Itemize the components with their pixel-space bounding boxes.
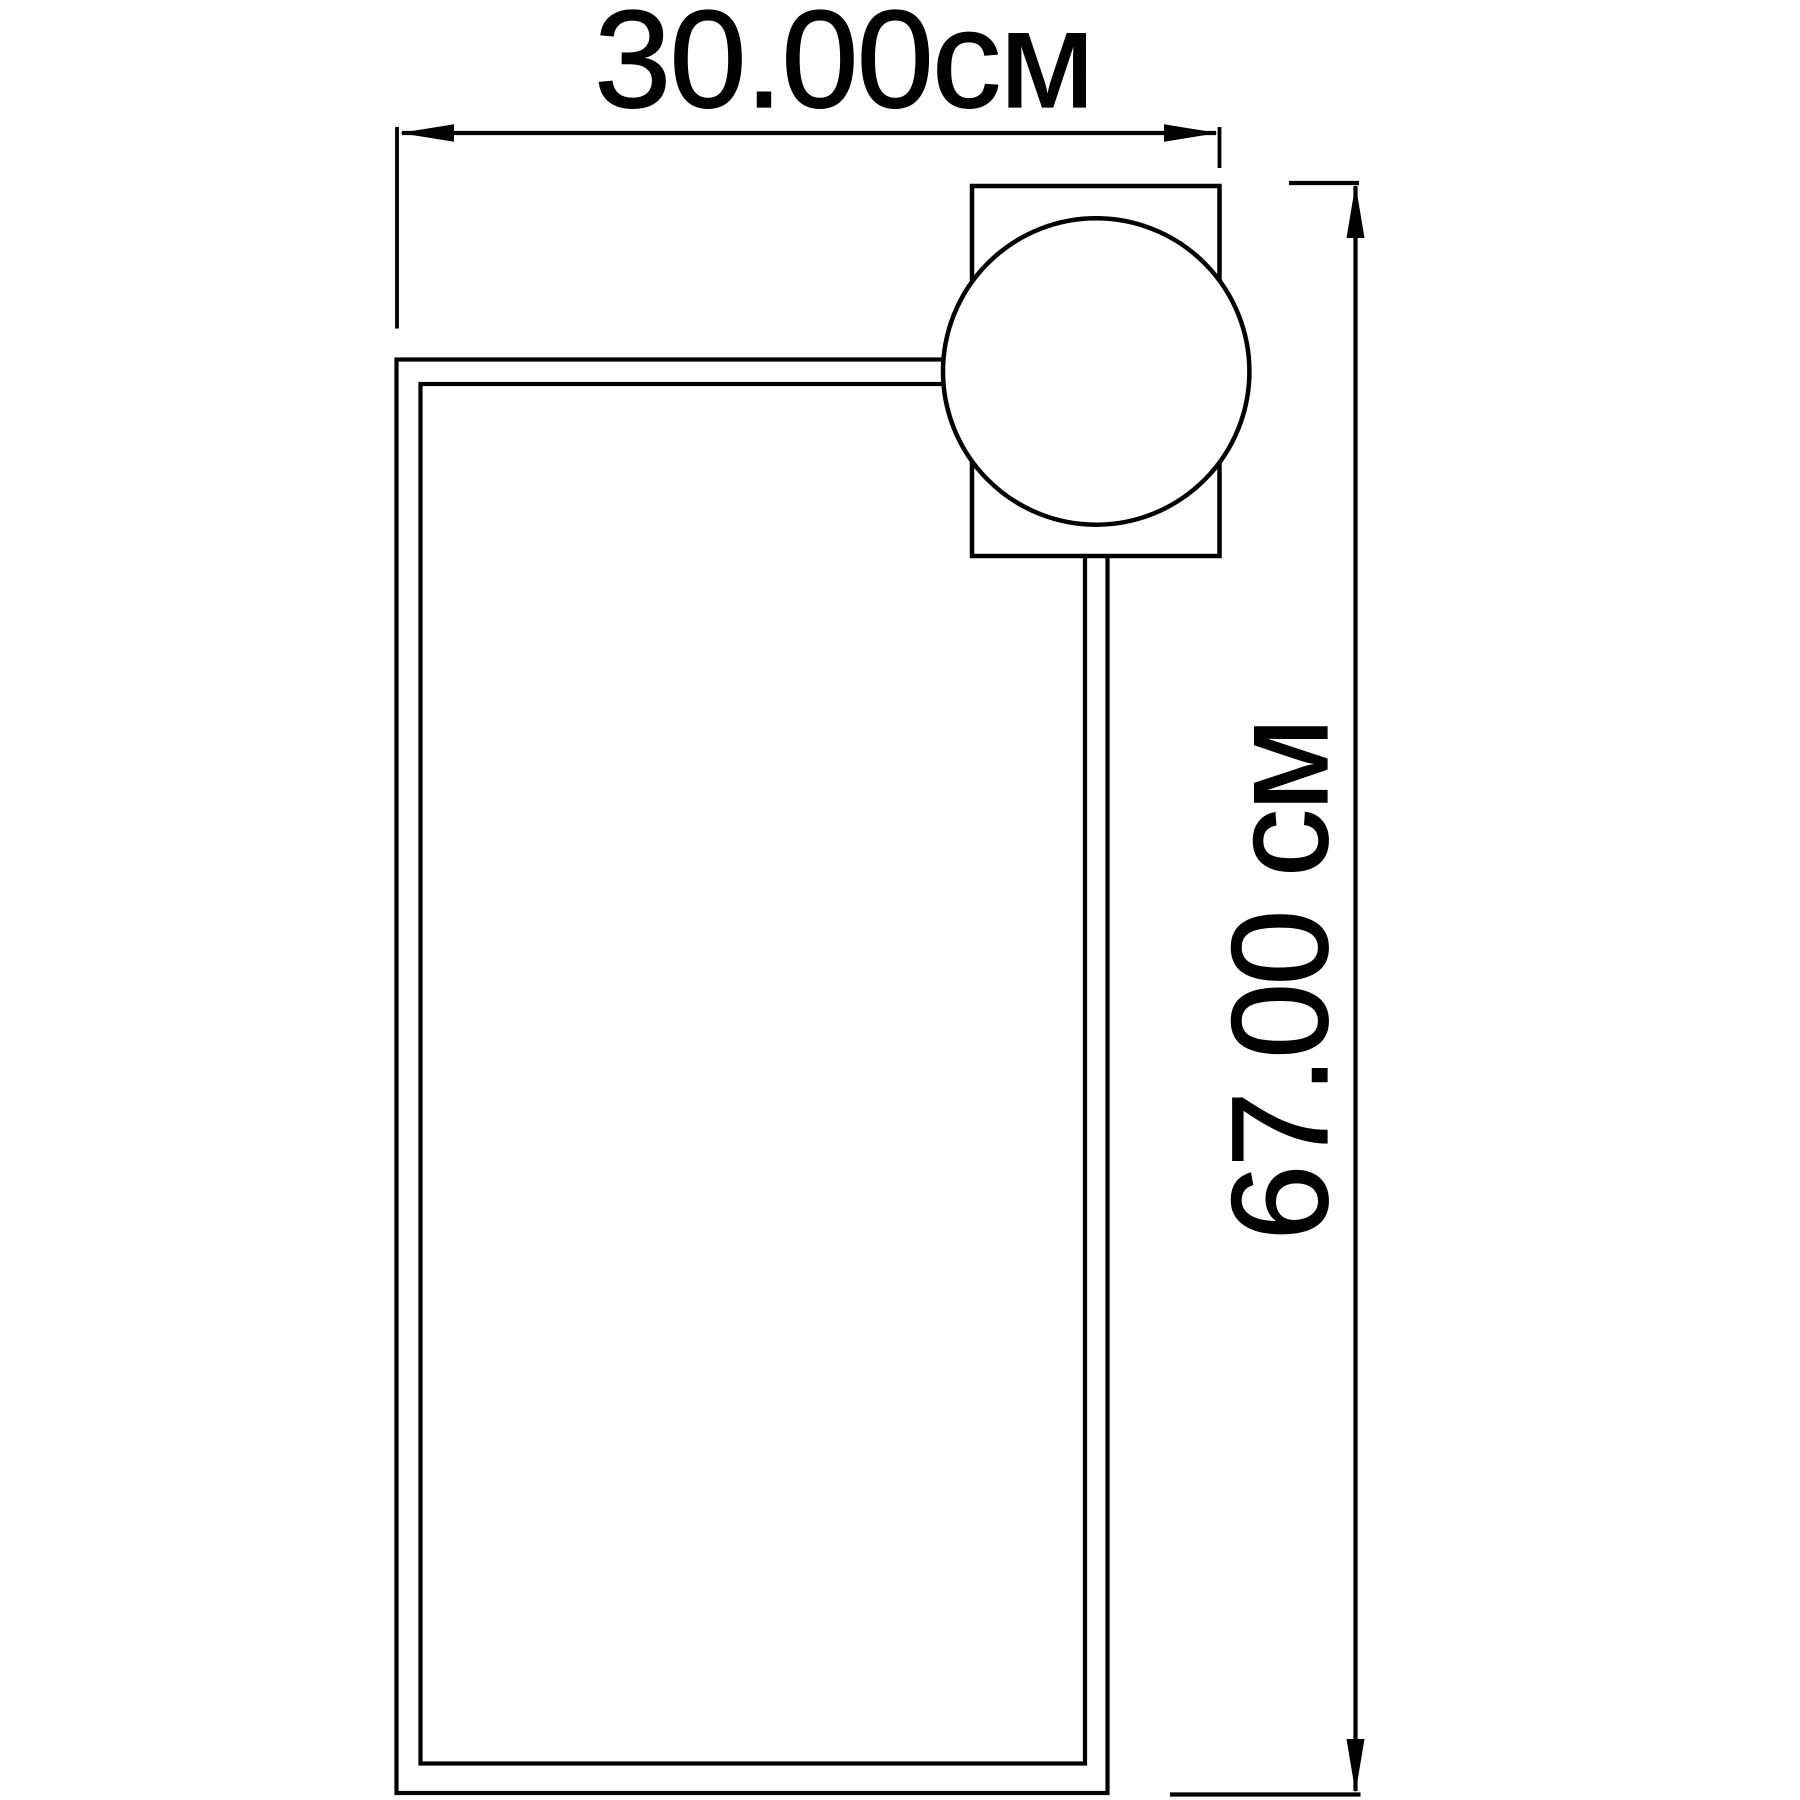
svg-text:30.00см: 30.00см <box>594 0 1093 137</box>
svg-text:67.00 см: 67.00 см <box>1204 720 1357 1240</box>
